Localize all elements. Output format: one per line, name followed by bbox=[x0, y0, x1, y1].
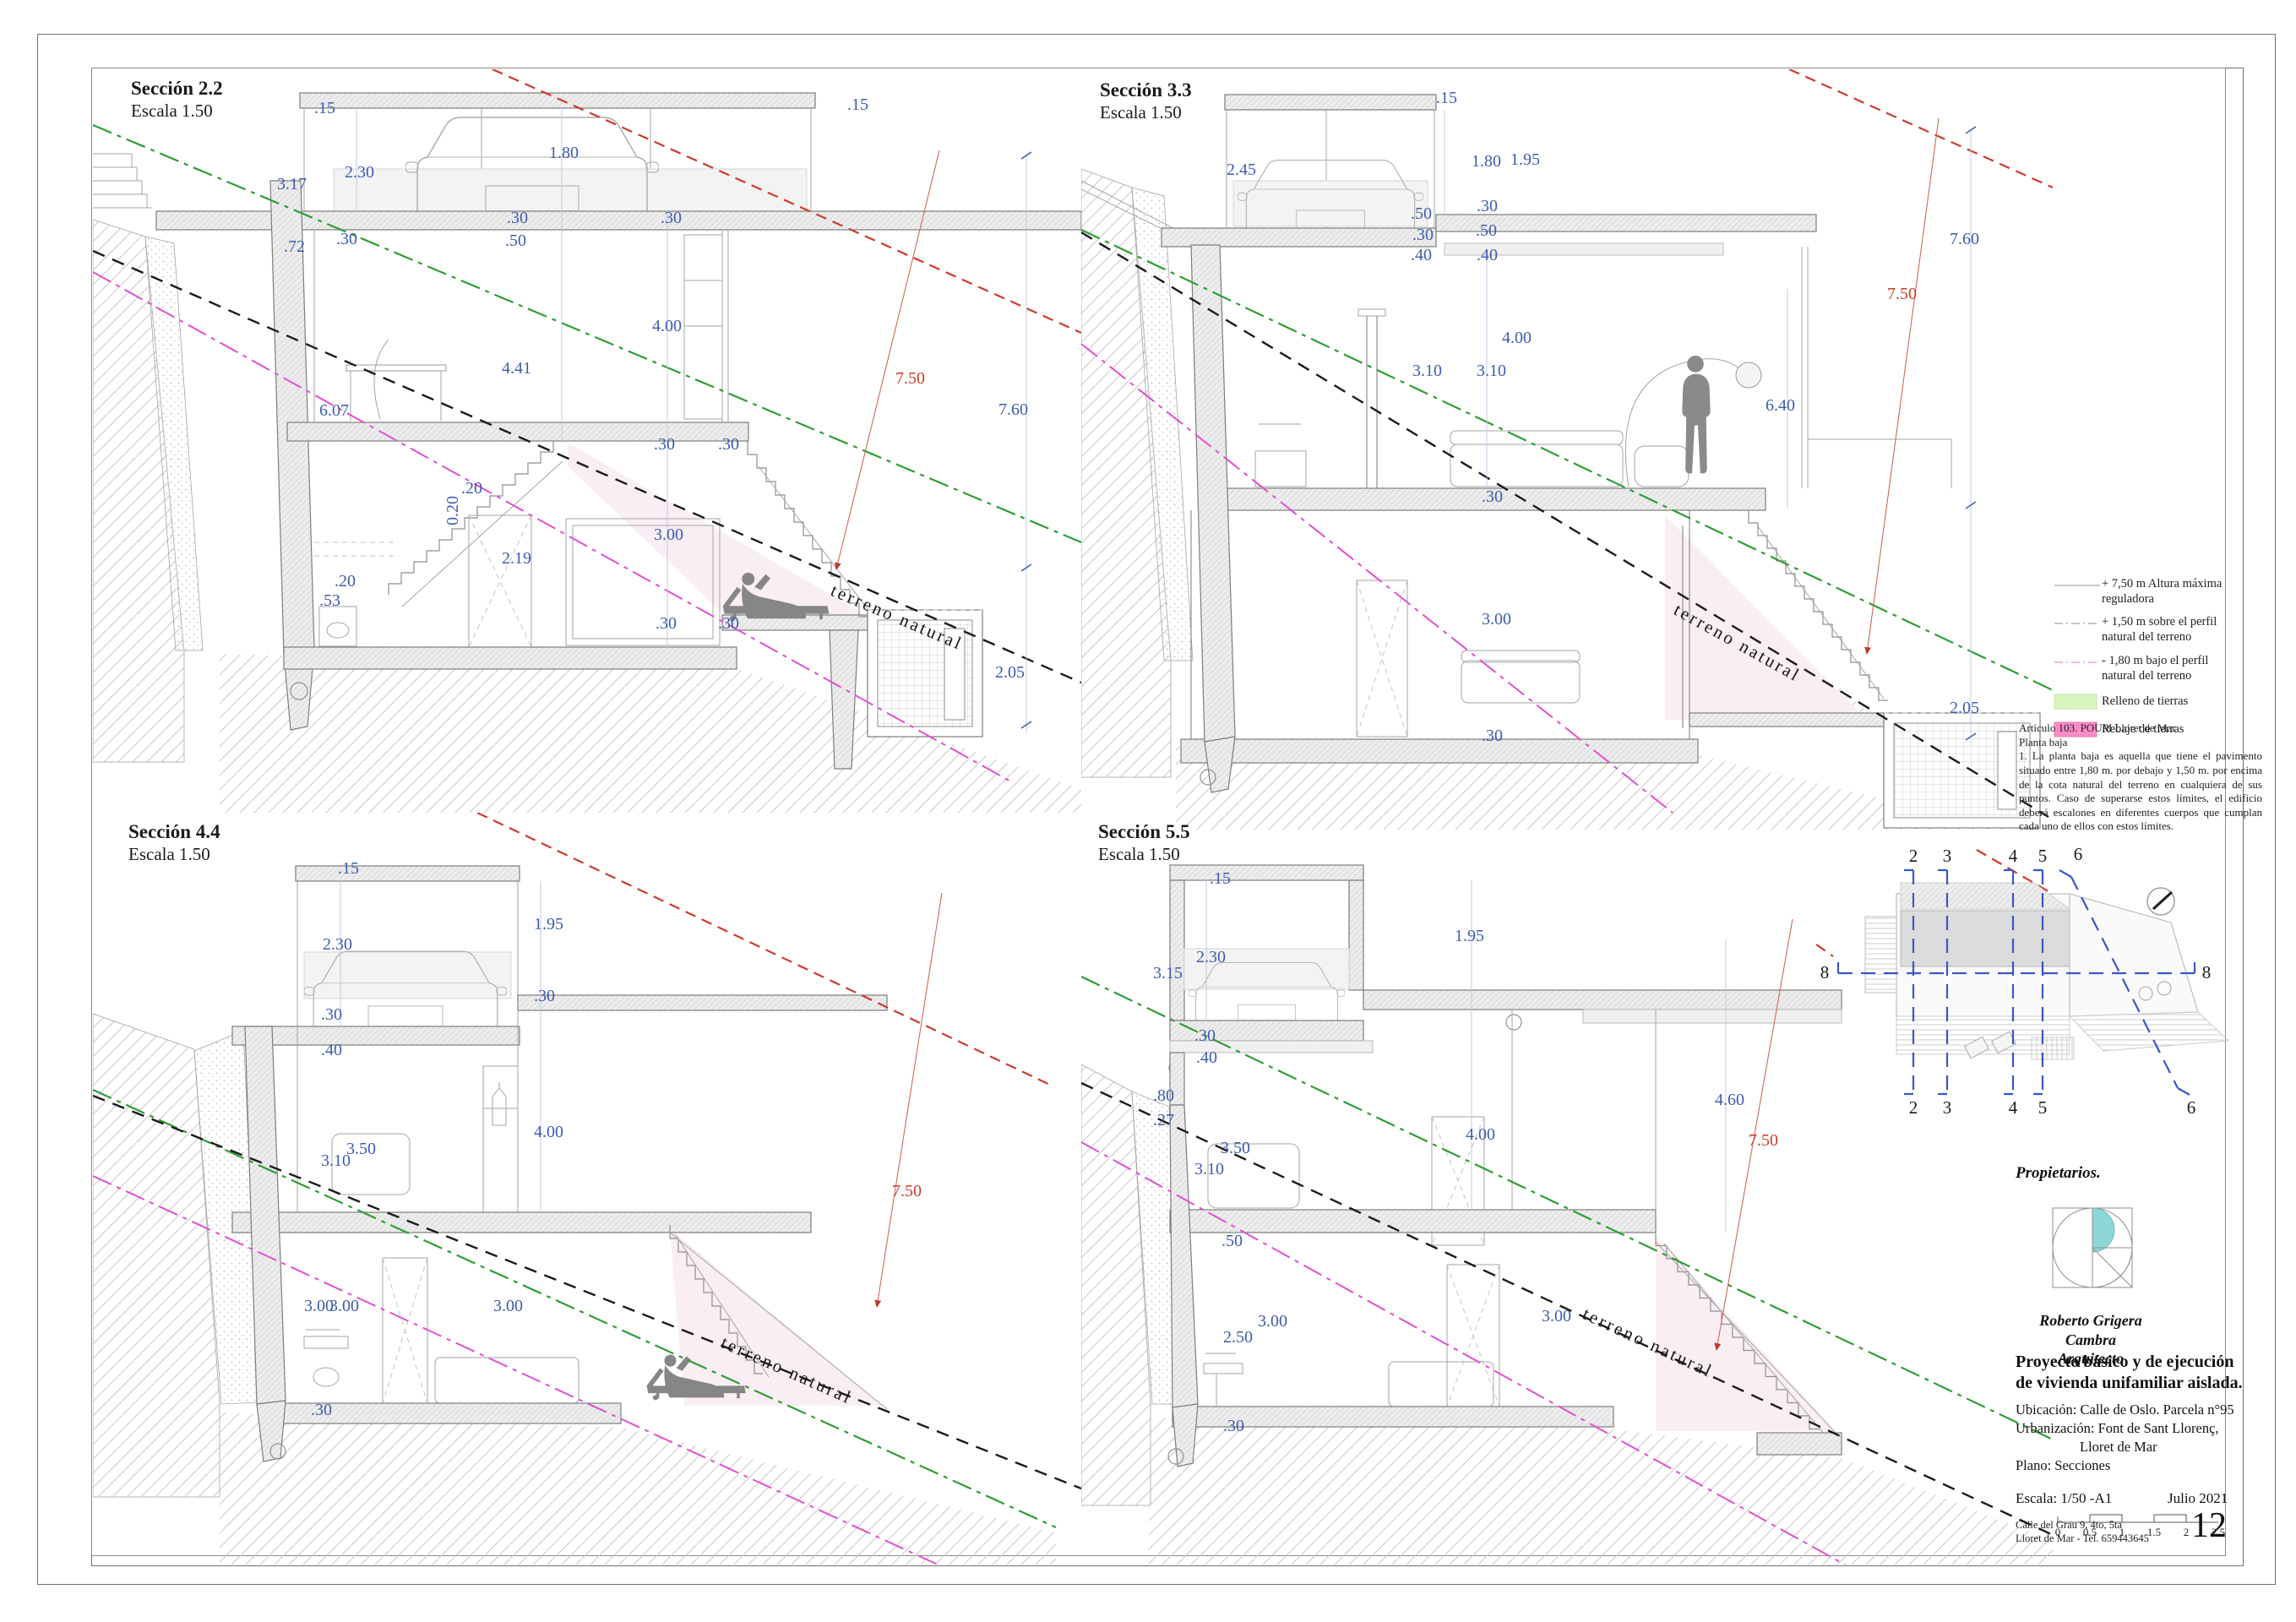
section-3-3-drawing: Sección 3.3 Escala 1.50 terreno natural … bbox=[1081, 69, 2053, 830]
dim-label: 2.45 bbox=[1227, 161, 1256, 179]
dim-label: 2.30 bbox=[1196, 948, 1226, 966]
bottom-slab bbox=[1181, 739, 1698, 763]
garage-wall-left bbox=[1170, 880, 1184, 1021]
dim-label: .30 bbox=[321, 1005, 342, 1024]
dim-label: 3.17 bbox=[277, 175, 307, 193]
dim-label-red: 7.50 bbox=[1749, 1131, 1778, 1150]
fill-swatch bbox=[2053, 693, 2102, 711]
legend-item: - 1,80 m bajo el perfil natural del terr… bbox=[2053, 653, 2230, 683]
column bbox=[1367, 316, 1377, 488]
svg-text:4: 4 bbox=[2009, 846, 2018, 866]
mid-floor-slab bbox=[232, 1212, 811, 1233]
section-title: Sección 3.3 bbox=[1100, 79, 1192, 101]
section-scale: Escala 1.50 bbox=[1100, 102, 1182, 122]
street-steps bbox=[93, 154, 152, 208]
deck-slab bbox=[1689, 713, 1884, 727]
dim-label: 3.00 bbox=[1482, 610, 1511, 629]
dim-label: 3.00 bbox=[493, 1297, 523, 1315]
dim-label: 2.30 bbox=[345, 163, 374, 182]
wardrobe bbox=[483, 1066, 518, 1212]
page-number: 12 bbox=[2191, 1505, 2227, 1546]
dim-label: .30 bbox=[656, 614, 677, 633]
plan-line: Plano: Secciones bbox=[2016, 1456, 2261, 1475]
glazing bbox=[1802, 247, 1951, 488]
svg-text:8: 8 bbox=[1820, 962, 1830, 982]
dim-label: .40 bbox=[1477, 246, 1498, 264]
dim-label: .30 bbox=[718, 435, 739, 454]
dim-label: .30 bbox=[1482, 727, 1503, 745]
dim-label: .50 bbox=[1221, 1232, 1243, 1250]
legend-item: Relleno de tierras bbox=[2053, 691, 2230, 711]
dim-label: 3.00 bbox=[654, 525, 683, 544]
retaining-wall bbox=[1170, 1105, 1198, 1407]
dim-label: .15 bbox=[1436, 89, 1457, 107]
bottom-slab bbox=[284, 647, 737, 669]
desk bbox=[346, 365, 446, 371]
mid-floor-slab bbox=[1170, 1210, 1656, 1233]
drawing-sheet: Sección 2.2 Escala 1.50 terreno natural … bbox=[0, 0, 2296, 1622]
project-info: Ubicación: Calle de Oslo. Parcela n°95 U… bbox=[2016, 1401, 2261, 1475]
dim-label: 3.00 bbox=[1542, 1307, 1571, 1325]
dim-label: 3.00 bbox=[329, 1297, 359, 1315]
dim-label: 6.07 bbox=[319, 401, 349, 420]
dim-label: 7.60 bbox=[998, 400, 1028, 419]
date-label: Julio 2021 bbox=[2168, 1490, 2228, 1507]
dim-label: .30 bbox=[534, 987, 555, 1005]
dim-label: .30 bbox=[1482, 487, 1503, 506]
terrace-slab bbox=[518, 995, 887, 1010]
dash-dot-line-symbol bbox=[2053, 616, 2102, 631]
dim-label: 3.50 bbox=[1221, 1139, 1250, 1157]
owners-label: Propietarios. bbox=[2016, 1164, 2101, 1183]
sofa bbox=[1450, 431, 1623, 487]
garage-floor-slab bbox=[232, 1026, 520, 1045]
legend-item: + 7,50 m Altura máxima reguladora bbox=[2053, 576, 2230, 607]
dimensions: .15 2.30 1.95 .30 .40 .30 3.10 3.50 4.00… bbox=[304, 859, 922, 1419]
roof-slab bbox=[296, 866, 520, 881]
svg-text:6: 6 bbox=[2074, 845, 2083, 864]
garage-floor-slab bbox=[1162, 228, 1436, 247]
dim-label: .20 bbox=[461, 479, 482, 498]
section-scale: Escala 1.50 bbox=[131, 101, 213, 121]
dim-label: 4.00 bbox=[652, 317, 682, 335]
dim-label: 3.10 bbox=[1477, 362, 1506, 380]
dim-label: 4.41 bbox=[502, 359, 531, 378]
section-title: Sección 5.5 bbox=[1098, 821, 1190, 842]
plan-roof bbox=[1901, 911, 2070, 966]
height-check-line bbox=[877, 893, 942, 1307]
svg-text:5: 5 bbox=[2038, 846, 2048, 866]
vanity bbox=[1255, 451, 1306, 487]
dim-label: .30 bbox=[661, 209, 682, 227]
stair-landing bbox=[1757, 1433, 1842, 1455]
terrain-hatch bbox=[93, 1014, 1056, 1565]
dim-label: 3.50 bbox=[346, 1140, 376, 1158]
section-title: Sección 4.4 bbox=[128, 821, 220, 842]
svg-text:2: 2 bbox=[1909, 846, 1918, 866]
building bbox=[1081, 95, 2040, 828]
armchair bbox=[1635, 446, 1689, 487]
roof-slab bbox=[1170, 865, 1363, 880]
svg-text:2: 2 bbox=[1909, 1097, 1918, 1118]
dim-label: 1.80 bbox=[1472, 152, 1501, 171]
dim-label: 3.15 bbox=[1153, 964, 1183, 982]
vanity bbox=[304, 1336, 348, 1348]
dim-label: .80 bbox=[1153, 1086, 1174, 1105]
dim-label: .50 bbox=[505, 231, 526, 250]
dim-label: 7.60 bbox=[1950, 230, 1979, 248]
dim-label: .53 bbox=[319, 591, 340, 610]
dim-label: 1.80 bbox=[549, 144, 579, 162]
location-line: Ubicación: Calle de Oslo. Parcela n°95 bbox=[2016, 1401, 2261, 1419]
svg-text:8: 8 bbox=[2202, 962, 2212, 982]
office-address: Calle del Grau 9, 4to, 5ta Lloret de Mar… bbox=[2016, 1518, 2149, 1546]
svg-text:3: 3 bbox=[1943, 1097, 1952, 1118]
toilet bbox=[319, 607, 356, 646]
roof-slab bbox=[300, 93, 815, 108]
dim-label: 2.30 bbox=[323, 935, 352, 954]
dim-label: 6.40 bbox=[1766, 396, 1795, 415]
north-compass-icon bbox=[2147, 888, 2174, 915]
max-height-tick bbox=[1816, 944, 1833, 956]
dim-label: .30 bbox=[718, 614, 739, 633]
architect-logo bbox=[2044, 1201, 2141, 1294]
dim-label: 4.60 bbox=[1715, 1091, 1744, 1109]
architect-name: Roberto Grigera Cambra bbox=[2015, 1311, 2167, 1349]
dim-label: 1.95 bbox=[1455, 927, 1484, 945]
dim-label-red: 7.50 bbox=[895, 369, 925, 388]
dim-label: 0.20 bbox=[443, 496, 462, 525]
mid-floor-slab bbox=[287, 422, 748, 441]
dash-dot-line-symbol bbox=[2053, 655, 2102, 670]
dim-label: .15 bbox=[314, 99, 335, 117]
dim-label: 3.00 bbox=[1258, 1312, 1287, 1331]
roller-shutter bbox=[1506, 1015, 1521, 1030]
arc-lamp bbox=[1625, 359, 1745, 487]
parapet-band bbox=[334, 169, 807, 211]
toilet bbox=[313, 1368, 339, 1386]
project-title: Proyecto básico y de ejecución de vivien… bbox=[2016, 1352, 2252, 1394]
dim-label: .20 bbox=[335, 572, 356, 591]
bottom-slab bbox=[283, 1403, 621, 1423]
regulation-note: Artículo 103. POUM Lloret de Mar Planta … bbox=[2019, 721, 2262, 834]
city-line: Lloret de Mar bbox=[2016, 1438, 2261, 1456]
solid-line-symbol bbox=[2053, 578, 2102, 593]
svg-text:1.5: 1.5 bbox=[2147, 1526, 2161, 1538]
svg-text:2: 2 bbox=[2184, 1526, 2190, 1538]
dim-label: .27 bbox=[1153, 1111, 1174, 1129]
interior-stair bbox=[389, 441, 566, 595]
legend-item: + 1,50 m sobre el perfil natural del ter… bbox=[2053, 614, 2230, 645]
dim-label: 4.00 bbox=[534, 1123, 563, 1141]
section-2-2-drawing: Sección 2.2 Escala 1.50 terreno natural … bbox=[93, 69, 1081, 813]
section-scale: Escala 1.50 bbox=[128, 844, 210, 864]
dim-label: 4.00 bbox=[1502, 329, 1532, 347]
dim-label: .30 bbox=[1223, 1417, 1244, 1435]
sofa bbox=[435, 1358, 579, 1403]
dim-label: .30 bbox=[1477, 197, 1498, 215]
garage-wall-right bbox=[1349, 880, 1363, 990]
sofa bbox=[1389, 1362, 1493, 1407]
wardrobe bbox=[684, 235, 722, 419]
dim-label: 2.05 bbox=[995, 663, 1025, 682]
dim-label: 1.95 bbox=[1510, 150, 1540, 169]
dim-label: 1.95 bbox=[534, 915, 563, 933]
dim-label: 2.19 bbox=[502, 549, 531, 568]
section-4-4-drawing: Sección 4.4 Escala 1.50 terreno natural … bbox=[93, 813, 1081, 1565]
max-height-line bbox=[1789, 69, 2053, 188]
dim-label: .50 bbox=[1411, 204, 1432, 223]
dim-label: 2.50 bbox=[1223, 1328, 1253, 1347]
height-check-line bbox=[1867, 118, 1939, 654]
roof-slab bbox=[1225, 95, 1436, 110]
dim-label: 2.05 bbox=[1950, 699, 1979, 717]
section-scale: Escala 1.50 bbox=[1098, 844, 1180, 864]
dim-label: .30 bbox=[1412, 226, 1434, 244]
vanity bbox=[1204, 1363, 1243, 1374]
dim-label: .30 bbox=[336, 230, 357, 248]
urbanization-line: Urbanización: Font de Sant Llorenç, bbox=[2016, 1419, 2261, 1438]
dim-label: 4.00 bbox=[1466, 1125, 1495, 1144]
dim-label: .50 bbox=[1476, 221, 1497, 240]
section-title: Sección 2.2 bbox=[131, 78, 223, 99]
dim-label-red: 7.50 bbox=[1887, 285, 1917, 303]
terrace-slab bbox=[1363, 990, 1842, 1010]
keyplan-house bbox=[1865, 883, 2228, 1059]
key-plan: 2 3 4 5 6 2 3 4 5 6 8 8 bbox=[1816, 845, 2255, 1124]
dim-label-red: 7.50 bbox=[892, 1182, 922, 1200]
dim-label: .15 bbox=[847, 95, 868, 114]
svg-text:3: 3 bbox=[1943, 846, 1952, 866]
natural-terrain-line bbox=[93, 251, 1081, 683]
dim-label: .40 bbox=[1196, 1048, 1217, 1067]
dim-label: .72 bbox=[284, 237, 305, 256]
dim-label: .30 bbox=[1194, 1026, 1216, 1045]
svg-text:4: 4 bbox=[2009, 1097, 2018, 1118]
dim-label: .30 bbox=[311, 1401, 332, 1419]
plan-stair bbox=[1865, 917, 1896, 993]
dim-label: .40 bbox=[1411, 246, 1432, 264]
dim-label: .15 bbox=[1210, 869, 1231, 888]
pool bbox=[1884, 713, 2040, 828]
dim-label: .30 bbox=[507, 209, 528, 227]
person-standing-silhouette bbox=[1682, 356, 1710, 473]
scale-label: Escala: 1/50 -A1 bbox=[2016, 1490, 2112, 1507]
max-height-line bbox=[477, 813, 1052, 1086]
logo-teal-halfdisc bbox=[2092, 1208, 2114, 1252]
svg-text:5: 5 bbox=[2038, 1097, 2048, 1118]
dim-label: .40 bbox=[321, 1041, 342, 1059]
dim-label: 3.10 bbox=[1412, 362, 1442, 380]
dim-label: 3.10 bbox=[1194, 1160, 1224, 1178]
sofa-lower bbox=[1461, 661, 1580, 703]
svg-text:6: 6 bbox=[2187, 1097, 2196, 1118]
dim-label: .15 bbox=[338, 859, 359, 878]
dim-label: .30 bbox=[654, 435, 675, 454]
